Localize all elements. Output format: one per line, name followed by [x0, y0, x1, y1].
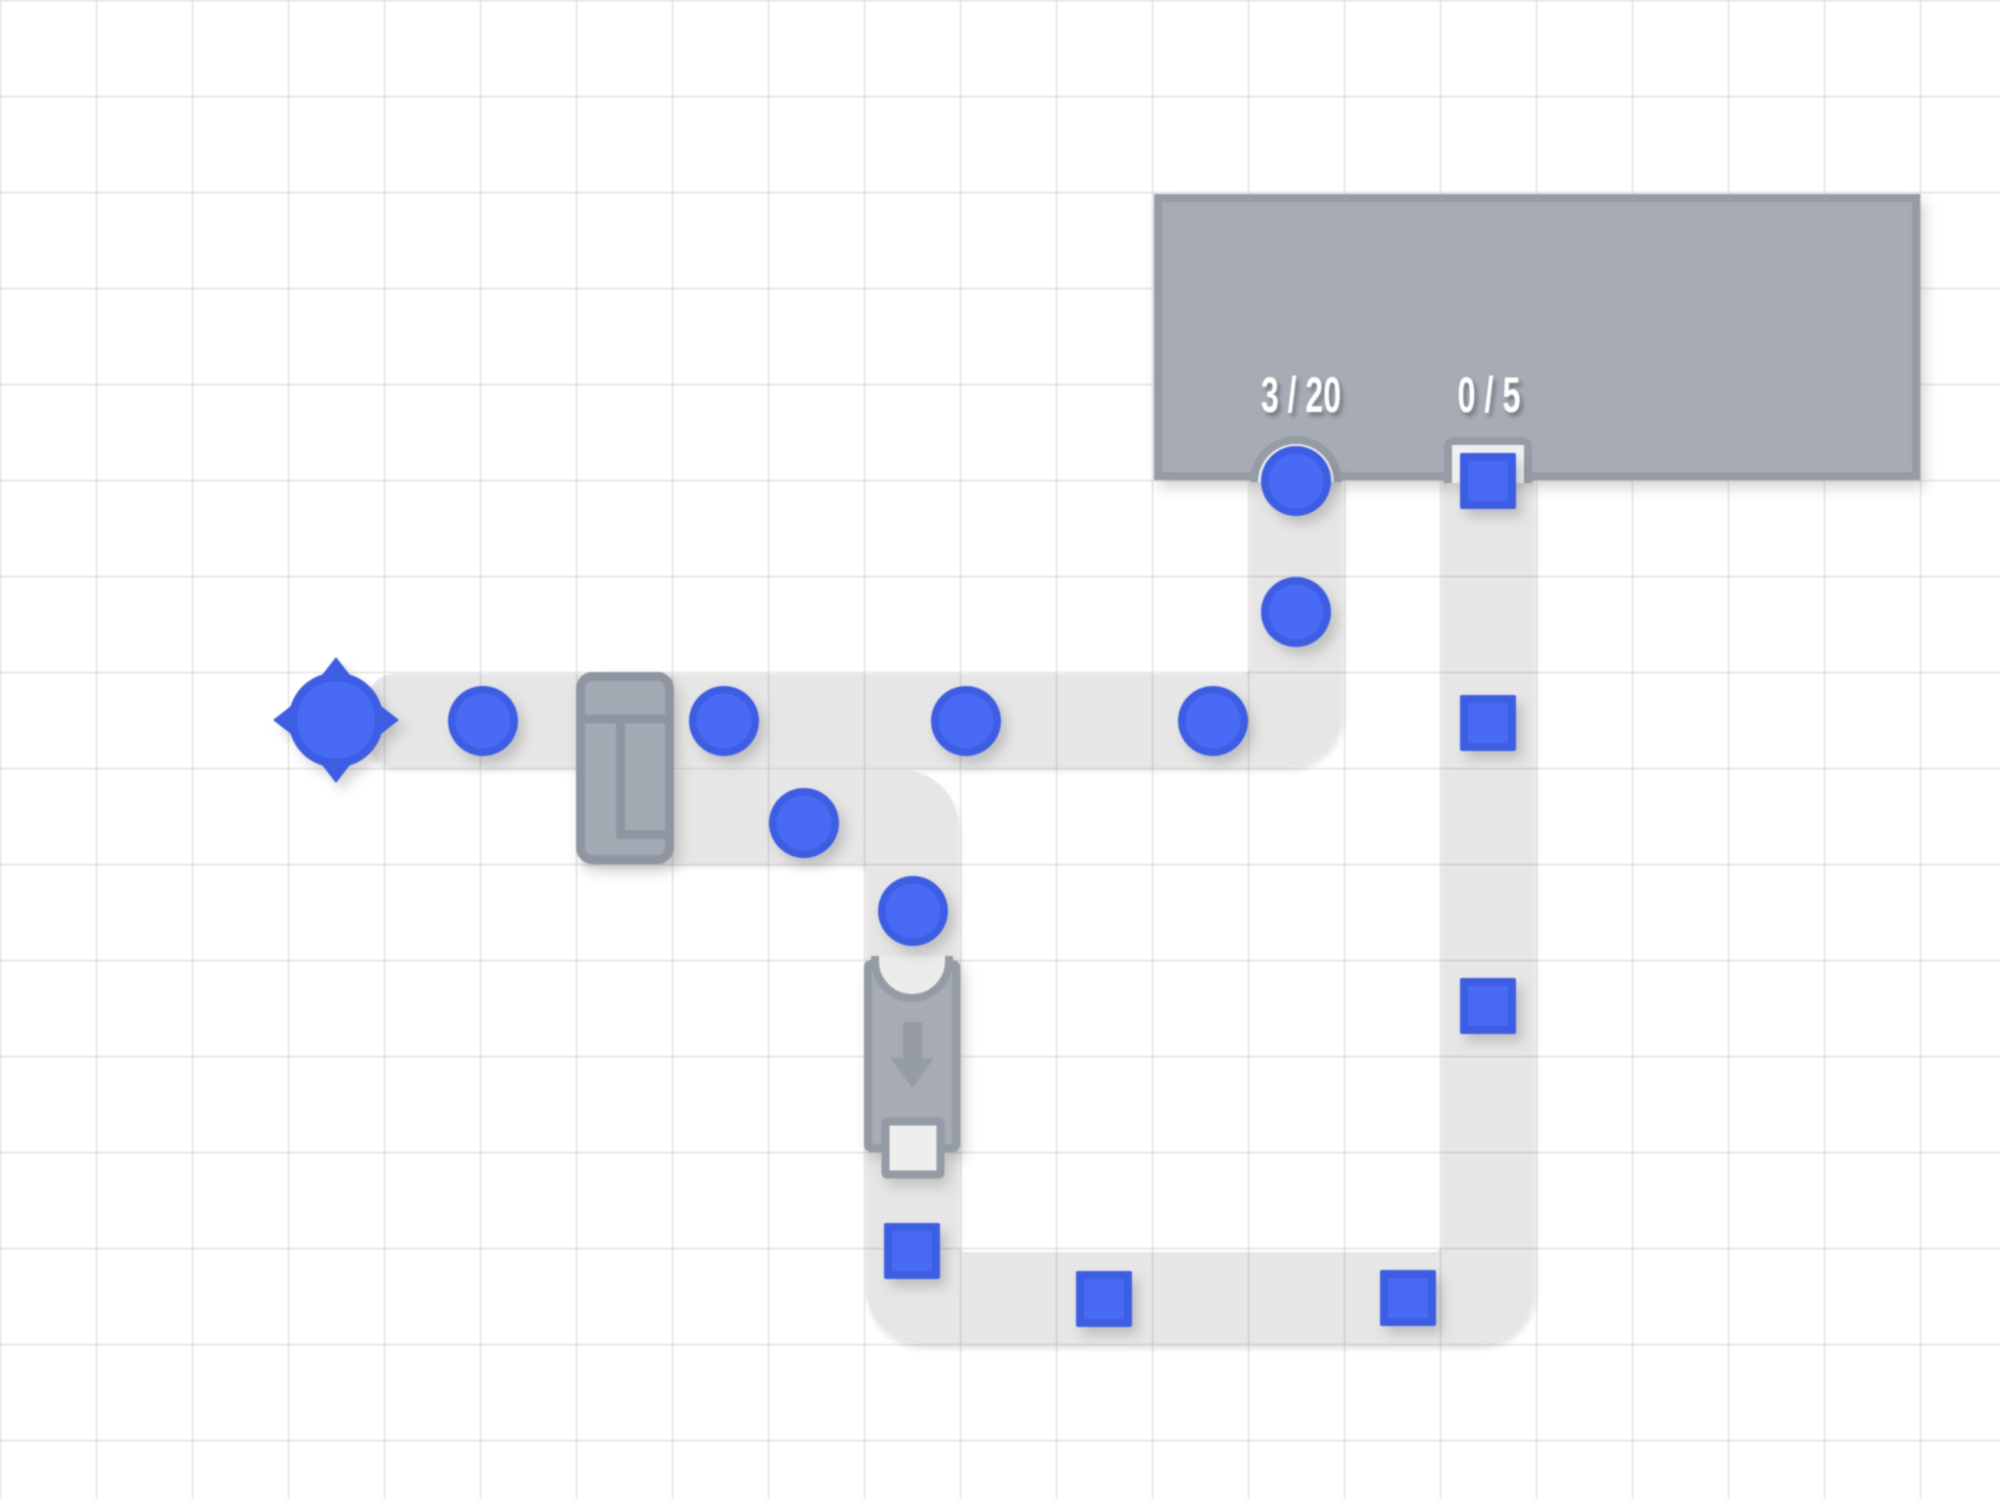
- svg-text:0 / 5: 0 / 5: [1458, 367, 1521, 423]
- svg-text:3 / 20: 3 / 20: [1261, 367, 1341, 423]
